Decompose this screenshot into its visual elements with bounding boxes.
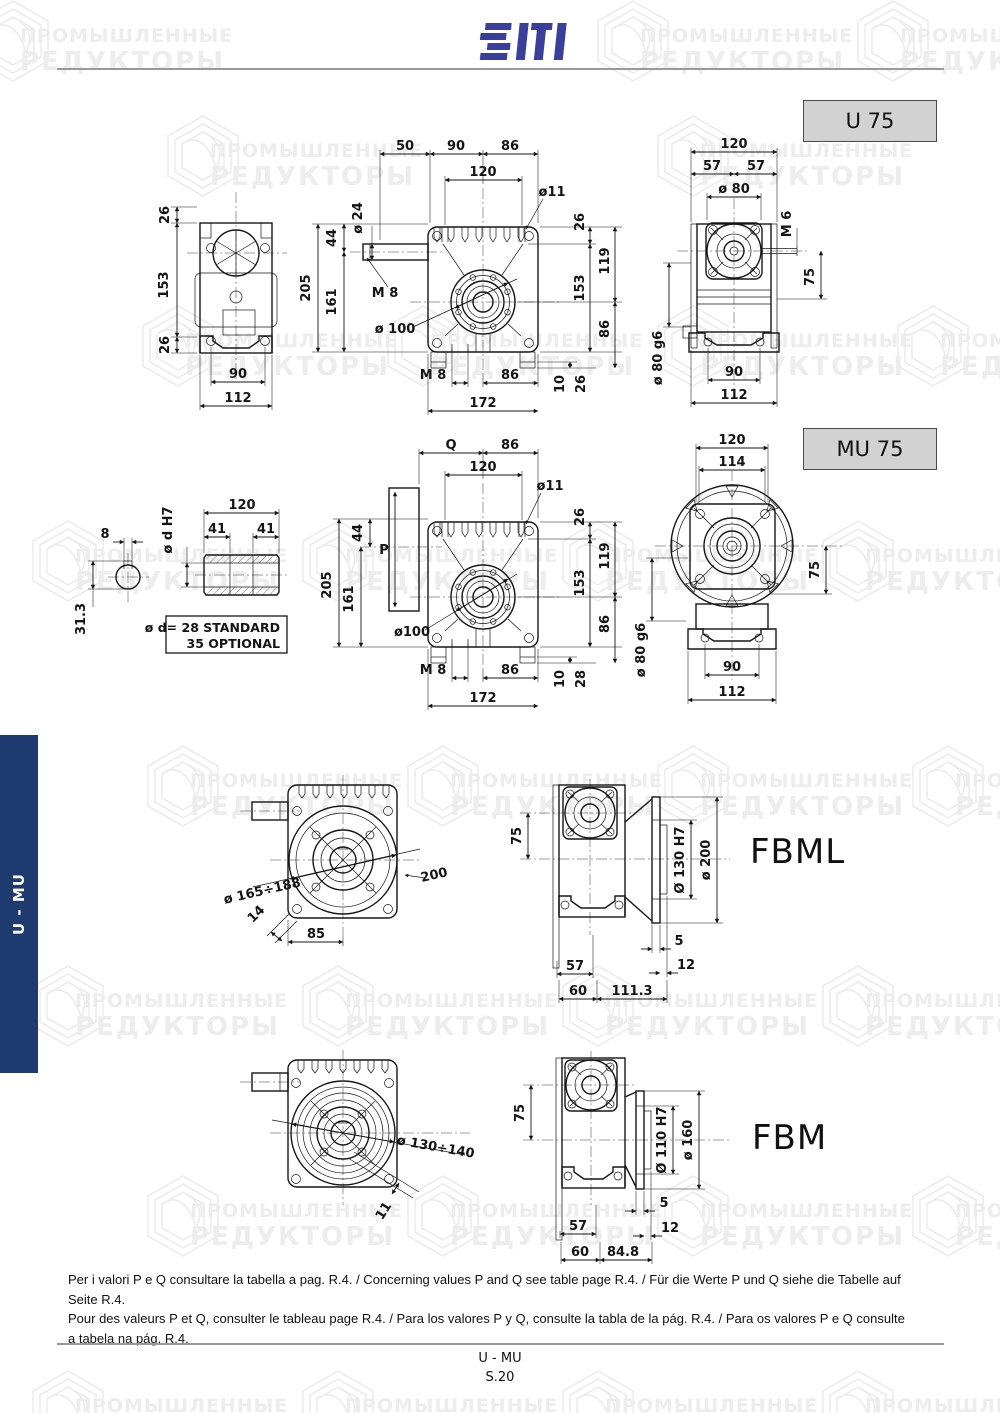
watermark-text-line1: ПРОМЫШЛЕННЫЕ bbox=[605, 1395, 818, 1413]
dim-label: 86 bbox=[501, 368, 519, 383]
dim-label: 12 bbox=[661, 1221, 679, 1236]
watermark-hexagon-icon bbox=[903, 740, 993, 835]
dim-label: 153 bbox=[573, 274, 588, 301]
dim-label: 90 bbox=[725, 365, 743, 380]
watermark-text-line2: РЕДУКТОРЫ bbox=[900, 47, 1000, 77]
catalog-page: ПРОМЫШЛЕННЫЕРЕДУКТОРЫПРОМЫШЛЕННЫЕРЕДУКТО… bbox=[0, 0, 1000, 1413]
dim-label: M 6 bbox=[780, 211, 795, 238]
footer-note-line3: a tabela na pág. R.4. bbox=[68, 1329, 930, 1349]
fbm-front-view: ø 130÷140 11 bbox=[230, 1055, 500, 1265]
dim-label: ø11 bbox=[536, 479, 563, 494]
watermark-text-line2: РЕДУКТОРЫ bbox=[955, 1222, 1000, 1252]
dim-label: 31.3 bbox=[74, 603, 89, 635]
dim-label: 161 bbox=[342, 585, 357, 612]
dim-label: 114 bbox=[718, 455, 745, 470]
dim-label: 161 bbox=[325, 288, 340, 315]
dim-label: 10 bbox=[553, 670, 568, 688]
watermark-text-line2: РЕДУКТОРЫ bbox=[75, 1012, 280, 1042]
dim-label: 120 bbox=[469, 460, 496, 475]
watermark-hexagon-icon bbox=[888, 300, 978, 395]
watermark-hexagon-icon bbox=[0, 0, 58, 90]
dim-label: 28 bbox=[574, 670, 589, 688]
fbm-label: FBM bbox=[752, 1118, 827, 1158]
dim-label: 85 bbox=[307, 927, 325, 942]
dim-label: 112 bbox=[718, 685, 745, 700]
dim-label: 205 bbox=[299, 274, 314, 301]
fbm-side-view: 75 Ø 110 H7 ø 160 5 12 57 60 bbox=[495, 1045, 760, 1273]
fbm-front-dims: ø 130÷140 11 bbox=[272, 1120, 476, 1223]
dim-label: 11 bbox=[373, 1199, 395, 1222]
dim-label: 26 bbox=[573, 508, 588, 526]
dim-label: M 8 bbox=[372, 286, 399, 301]
watermark-hexagon-icon bbox=[588, 0, 678, 90]
sidebar-label: U - MU bbox=[10, 873, 28, 935]
mu75-front-body bbox=[360, 483, 560, 670]
watermark-text-line1: ПРОМЫШЛЕННЫЕ bbox=[955, 1200, 1000, 1222]
header-rule bbox=[57, 68, 944, 70]
dim-label: 119 bbox=[598, 247, 613, 274]
dim-label: 60 bbox=[569, 984, 587, 999]
dim-label: 57 bbox=[703, 159, 721, 174]
u75-front-dims: 50 90 86 120 ø11 205 44 161 ø 24 M 8 ø 1… bbox=[299, 139, 622, 415]
dim-label: ø 80 g6 bbox=[651, 331, 666, 385]
dim-label: 75 bbox=[808, 561, 823, 579]
dim-label: 26 bbox=[573, 213, 588, 231]
dim-label: 120 bbox=[720, 137, 747, 152]
watermark-hexagon-icon bbox=[903, 1170, 993, 1265]
dim-label: ø 80 g6 bbox=[634, 623, 649, 677]
u75-side-body bbox=[187, 192, 287, 382]
u75-back-dims: 120 57 57 ø 80 M 6 75 ø 80 g6 90 bbox=[651, 137, 827, 407]
dim-label: 5 bbox=[674, 934, 683, 949]
dim-label: ø 165÷188 bbox=[222, 875, 302, 907]
watermark-text-line1: ПРОМЫШЛЕННЫЕ bbox=[865, 990, 1000, 1012]
dim-label: 90 bbox=[723, 660, 741, 675]
dim-label: 120 bbox=[469, 165, 496, 180]
u75-front-view: 50 90 86 120 ø11 205 44 161 ø 24 M 8 ø 1… bbox=[300, 130, 645, 425]
dim-label: ø d H7 bbox=[161, 506, 176, 553]
dim-label: 14 bbox=[245, 903, 268, 926]
u75-front-body bbox=[350, 188, 560, 375]
watermark-text-line2: РЕДУКТОРЫ bbox=[865, 1012, 1000, 1042]
watermark-text-line1: ПРОМЫШЛЕННЫЕ bbox=[900, 25, 1000, 47]
dim-label: 86 bbox=[598, 615, 613, 633]
watermark-text-line2: РЕДУКТОРЫ bbox=[345, 1012, 550, 1042]
u75-side-view: 26 153 26 90 112 bbox=[75, 140, 325, 425]
footer-note-line2: Pour des val­eurs P et Q, consulter le t… bbox=[68, 1309, 930, 1329]
dim-label: 41 bbox=[208, 522, 226, 537]
dim-label: 26 bbox=[158, 336, 173, 354]
u75-back-view: 120 57 57 ø 80 M 6 75 ø 80 g6 90 bbox=[645, 140, 890, 420]
dim-label: ø 200 bbox=[699, 840, 714, 881]
dim-label: 5 bbox=[659, 1196, 668, 1211]
shaft-note-line1: ø d= 28 STANDARD bbox=[145, 620, 280, 635]
watermark-text-line1: ПРОМЫШЛЕННЫЕ bbox=[865, 1395, 1000, 1413]
footer-rule bbox=[57, 1343, 944, 1345]
dim-label: 57 bbox=[569, 1219, 587, 1234]
watermark-text-line2: РЕДУКТОРЫ bbox=[640, 47, 845, 77]
dim-label: 44 bbox=[325, 229, 340, 247]
dim-label: 120 bbox=[228, 498, 255, 513]
dim-label: 57 bbox=[566, 959, 584, 974]
watermark-text-line1: ПРОМЫШЛЕННЫЕ bbox=[75, 1395, 288, 1413]
dim-label: 8 bbox=[100, 527, 109, 542]
dim-label: 153 bbox=[157, 271, 172, 298]
dim-label: 75 bbox=[510, 827, 525, 845]
fbml-label: FBML bbox=[750, 832, 845, 872]
dim-label: Ø 110 H7 bbox=[655, 1106, 670, 1173]
footer-note-line1: Per i valori P e Q consultare la tabella… bbox=[68, 1270, 930, 1309]
footer-page-number: S.20 bbox=[0, 1370, 1000, 1385]
footer-doc-code: U - MU bbox=[0, 1351, 1000, 1366]
dim-label: 86 bbox=[501, 139, 519, 154]
dim-label: ø11 bbox=[538, 185, 565, 200]
dim-label: 90 bbox=[229, 367, 247, 382]
dim-label: 90 bbox=[447, 139, 465, 154]
dim-label: 172 bbox=[469, 396, 496, 411]
mu75-front-dims: Q 86 120 ø11 205 44 161 P ø100 M 8 bbox=[320, 438, 622, 710]
dim-label: 50 bbox=[396, 139, 414, 154]
dim-label: 75 bbox=[803, 268, 818, 286]
dim-label: Ø 130 H7 bbox=[673, 826, 688, 893]
dim-label: ø 24 bbox=[351, 202, 366, 234]
dim-label: 172 bbox=[469, 691, 496, 706]
watermark-hexagon-icon bbox=[813, 960, 903, 1055]
dim-label: 26 bbox=[158, 206, 173, 224]
dim-label: Q bbox=[445, 438, 456, 453]
mu75-front-view: Q 86 120 ø11 205 44 161 P ø100 M 8 bbox=[300, 425, 645, 725]
shaft-section-body bbox=[108, 553, 290, 602]
dim-label: ø 160 bbox=[681, 1120, 696, 1161]
footer-note: Per i valori P e Q consultare la tabella… bbox=[68, 1270, 930, 1348]
sidebar-section-tab: U - MU bbox=[0, 735, 38, 1073]
dim-label: 57 bbox=[747, 159, 765, 174]
dim-label: 153 bbox=[573, 569, 588, 596]
shaft-section-dims: 8 31.3 120 41 41 ø d H7 ø d= 28 STANDARD… bbox=[74, 498, 287, 653]
u75-side-dims: 26 153 26 90 112 bbox=[157, 206, 272, 410]
dim-label: ø 100 bbox=[375, 322, 416, 337]
watermark-text-line1: ПРОМЫШЛЕННЫЕ bbox=[20, 25, 233, 47]
watermark-hexagon-icon bbox=[138, 1170, 228, 1265]
dim-label: ø 130÷140 bbox=[396, 1133, 476, 1161]
u75-label: U 75 bbox=[803, 100, 937, 142]
fbml-front-view: ø 165÷188 200 14 85 bbox=[225, 775, 480, 990]
fbml-front-dims: ø 165÷188 200 14 85 bbox=[222, 849, 449, 946]
watermark-text-line1: ПРОМЫШЛЕННЫЕ bbox=[75, 990, 288, 1012]
dim-label: 120 bbox=[718, 433, 745, 448]
shaft-note-line2: 35 OPTIONAL bbox=[187, 636, 280, 651]
watermark-text-line1: ПРОМЫШЛЕННЫЕ bbox=[955, 770, 1000, 792]
watermark-text-line2: РЕДУКТОРЫ bbox=[605, 1012, 810, 1042]
dim-label: 86 bbox=[598, 320, 613, 338]
fbml-side-view: 75 Ø 130 H7 ø 200 5 12 57 60 bbox=[495, 775, 760, 1013]
mu75-hollow-shaft-detail: 8 31.3 120 41 41 ø d H7 ø d= 28 STANDARD… bbox=[75, 485, 310, 660]
watermark-text-line1: ПРОМЫШЛЕННЫЕ bbox=[345, 1395, 558, 1413]
dim-label: 75 bbox=[513, 1104, 528, 1122]
dim-label: 111.3 bbox=[611, 984, 652, 999]
mu75-back-dims: 120 114 75 ø 80 g6 90 112 bbox=[634, 433, 832, 704]
u75-label-text: U 75 bbox=[846, 109, 895, 133]
dim-label: ø100 bbox=[394, 625, 430, 640]
dim-label: 200 bbox=[419, 865, 449, 886]
dim-label: 86 bbox=[501, 438, 519, 453]
mu75-back-view: 120 114 75 ø 80 g6 90 112 bbox=[630, 428, 890, 720]
dim-label: 26 bbox=[574, 375, 589, 393]
dim-label: 60 bbox=[571, 1245, 589, 1260]
dim-label: 44 bbox=[351, 524, 366, 542]
dim-label: 112 bbox=[224, 391, 251, 406]
watermark-hexagon-icon bbox=[848, 0, 938, 90]
watermark-text-line1: ПРОМЫШЛЕННЫЕ bbox=[940, 330, 1000, 352]
dim-label: 41 bbox=[257, 522, 275, 537]
watermark-hexagon-icon bbox=[138, 740, 228, 835]
dim-label: P bbox=[379, 543, 389, 558]
dim-label: M 8 bbox=[420, 663, 447, 678]
siti-logo bbox=[478, 20, 570, 66]
dim-label: 84.8 bbox=[607, 1245, 639, 1260]
fbm-front-body bbox=[240, 1050, 470, 1205]
dim-label: 86 bbox=[501, 663, 519, 678]
watermark-text-line1: ПРОМЫШЛЕННЫЕ bbox=[640, 25, 853, 47]
dim-label: 10 bbox=[553, 375, 568, 393]
dim-label: 119 bbox=[598, 542, 613, 569]
dim-label: 12 bbox=[677, 958, 695, 973]
watermark-text-line2: РЕДУКТОРЫ bbox=[20, 47, 225, 77]
dim-label: 205 bbox=[320, 571, 335, 598]
watermark-text-line2: РЕДУКТОРЫ bbox=[940, 352, 1000, 382]
watermark-text-line2: РЕДУКТОРЫ bbox=[955, 792, 1000, 822]
dim-label: M 8 bbox=[420, 368, 447, 383]
dim-label: ø 80 bbox=[718, 182, 750, 197]
dim-label: 112 bbox=[720, 388, 747, 403]
